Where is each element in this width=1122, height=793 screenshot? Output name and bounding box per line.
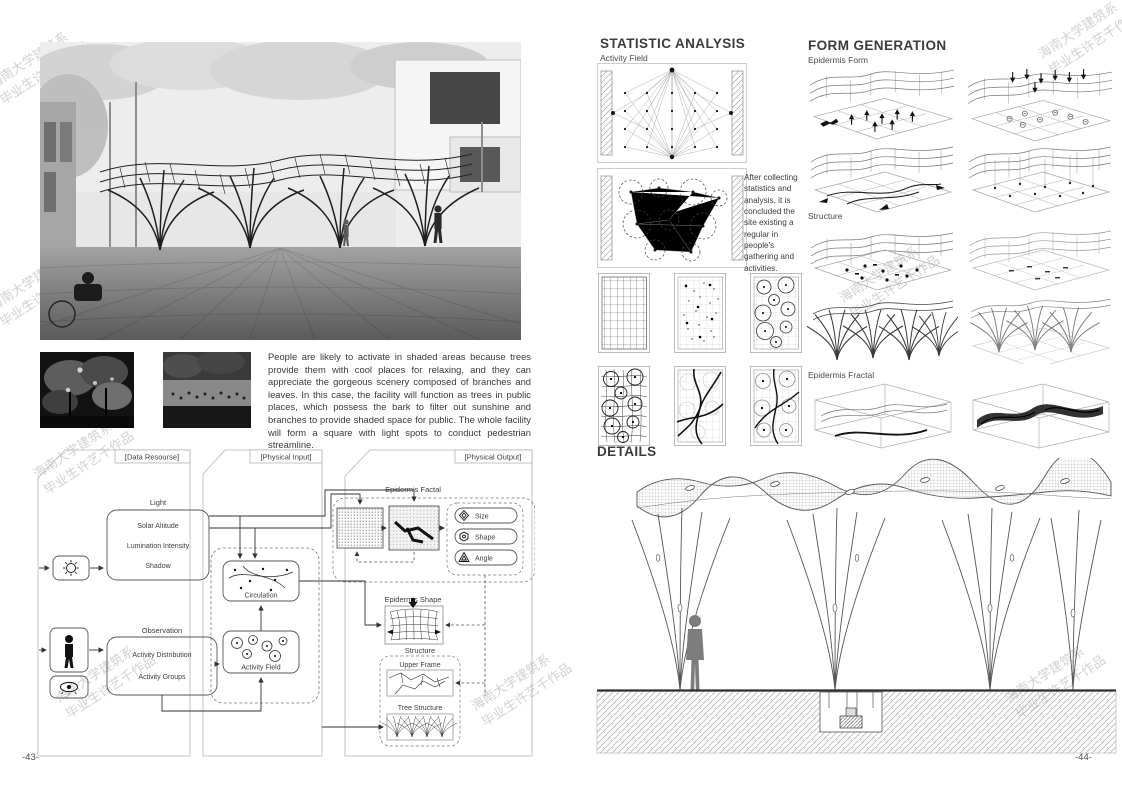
person-silhouette xyxy=(686,615,704,690)
panel-streamlines xyxy=(674,366,726,446)
structure-diagram-1 xyxy=(806,224,958,290)
activity-field-diagram xyxy=(597,63,747,163)
light-item: Shadow xyxy=(145,563,171,570)
header-data-resource: [Data Resourse] xyxy=(125,453,179,462)
main-render-photo xyxy=(40,42,521,340)
diamond-icon xyxy=(460,511,469,521)
activity-field-label: Activity Field xyxy=(241,665,280,672)
epidermis-form-diagram-4 xyxy=(964,144,1116,214)
structure-label: Structure xyxy=(405,646,435,655)
epidermis-form-diagram-2 xyxy=(964,66,1116,142)
pill-angle: Angle xyxy=(475,556,493,563)
details-title: DETAILS xyxy=(597,444,657,459)
epidermis-fractal-diagram-1 xyxy=(806,382,958,452)
hexagon-icon xyxy=(460,532,468,541)
page-number-right: -44- xyxy=(1075,752,1092,763)
pill-shape: Shape xyxy=(475,535,495,542)
eye-icon xyxy=(50,676,88,698)
statistic-analysis-title: STATISTIC ANALYSIS xyxy=(600,36,745,51)
tree-structure-label: Tree Structure xyxy=(398,705,443,712)
gathering-circles-diagram xyxy=(597,168,747,268)
header-physical-input: [Physical Input] xyxy=(261,453,312,462)
structure-diagram-4 xyxy=(964,290,1116,364)
light-label: Light xyxy=(150,498,167,507)
observation-label: Observation xyxy=(142,626,182,635)
person-icon xyxy=(50,628,88,672)
triangle-icon xyxy=(459,553,469,562)
page-number-left: -43- xyxy=(22,752,39,763)
details-section-drawing xyxy=(595,458,1118,755)
epidermis-form-diagram-1 xyxy=(806,66,958,142)
panel-circles-streamlines xyxy=(750,366,802,446)
epidermis-fractal-diagram-2 xyxy=(964,380,1116,452)
epidermis-form-diagram-3 xyxy=(806,144,958,214)
observation-item: Activity Groups xyxy=(138,674,186,681)
epidermis-fractal-label: Epidermis Fractal xyxy=(808,370,874,380)
pill-size: Size xyxy=(475,514,489,521)
panel-grid-circles xyxy=(750,273,802,353)
circulation-label: Circulation xyxy=(244,593,277,600)
form-generation-title: FORM GENERATION xyxy=(808,38,947,53)
panel-grid xyxy=(598,273,650,353)
upper-frame-label: Upper Frame xyxy=(399,662,440,669)
photo-trees-shade xyxy=(40,352,134,428)
light-item: Lumination Intensity xyxy=(127,543,190,550)
structure-label: Structure xyxy=(808,211,843,221)
observation-item: Activity Distribution xyxy=(132,652,191,659)
header-physical-output: [Physical Output] xyxy=(465,453,522,462)
design-flowchart: [Data Resourse] [Physical Input] [Physic… xyxy=(35,448,535,758)
panel-grid-dots xyxy=(674,273,726,353)
light-item: Solar Altitude xyxy=(137,523,178,530)
description-paragraph: People are likely to activate in shaded … xyxy=(268,351,531,452)
analysis-note: After collecting statistics and analysis… xyxy=(744,172,808,274)
photo-crowd-under-trees xyxy=(163,352,251,428)
sun-icon xyxy=(53,556,89,580)
activity-field-label: Activity Field xyxy=(600,53,648,63)
epidermis-factal-label: Epidermis Factal xyxy=(385,485,441,494)
structure-diagram-2 xyxy=(964,222,1116,290)
panel-warped-grid xyxy=(598,366,650,446)
structure-diagram-3 xyxy=(806,290,958,364)
portfolio-spread: 海南大学建筑系毕业生许艺千作品 海南大学建筑系毕业生许艺千作品 海南大学建筑系毕… xyxy=(0,0,1122,793)
epidermis-form-label: Epidermis Form xyxy=(808,55,868,65)
